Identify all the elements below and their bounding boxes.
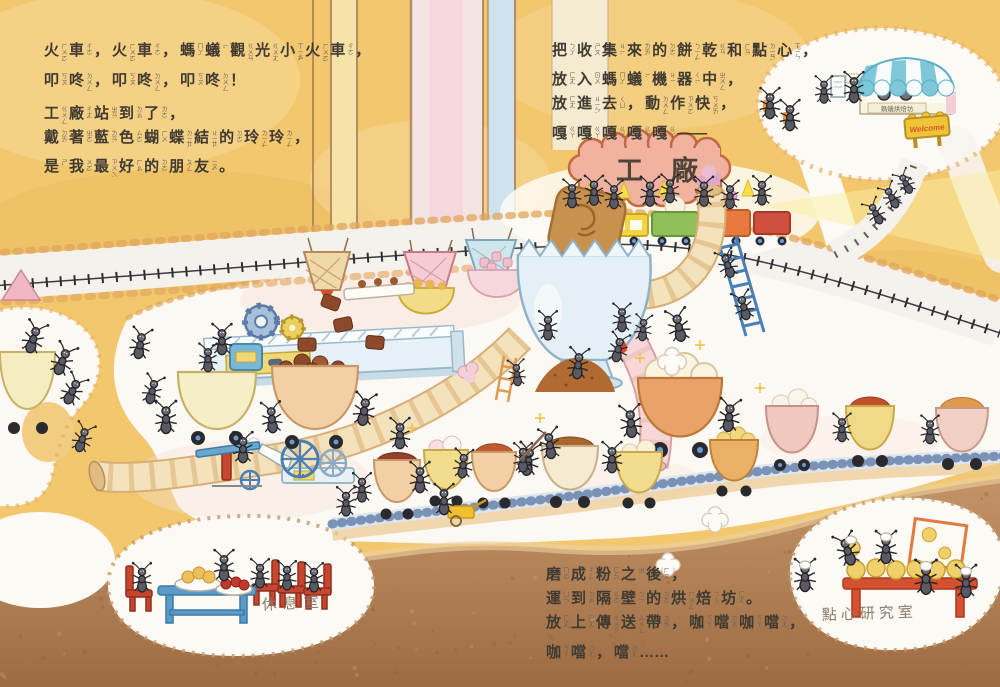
story-line: 工ㄍㄨㄥ廠ㄔㄤˇ站ㄓㄢˋ到ㄉㄠˋ了ㄌㄜ˙， xyxy=(44,105,373,124)
story-text-block-3: 磨ㄇㄛˊ成ㄔㄥˊ粉ㄈㄣˇ之ㄓ後ㄏㄡˋ， 運ㄩㄣˋ到ㄉㄠˋ隔ㄍㄜˊ壁ㄅㄧˋ的ㄉㄜ˙… xyxy=(546,566,807,666)
story-line: 咖ㄎㄚ噹ㄉㄤ，噹ㄉㄤ…… xyxy=(546,644,807,661)
story-text-block-1: 火ㄏㄨㄛˇ車ㄔㄜ，火ㄏㄨㄛˇ車ㄔㄜ，螞ㄇㄚˇ蟻ㄧˇ觀ㄍㄨㄢ光ㄍㄨㄤ小ㄒㄧㄠˇ火ㄏ… xyxy=(44,42,373,188)
story-line: 放ㄈㄤˋ入ㄖㄨˋ螞ㄇㄚˇ蟻ㄧˇ機ㄐㄧ器ㄑㄧˋ中ㄓㄨㄥ， xyxy=(552,71,820,90)
story-line: 放ㄈㄤˋ上ㄕㄤˋ傳ㄔㄨㄢˊ送ㄙㄨㄥˋ帶ㄉㄞˋ，咖ㄎㄚ噹ㄉㄤ咖ㄎㄚ噹ㄉㄤ， xyxy=(546,614,807,639)
picture-book-page: 工廠 xyxy=(0,0,1000,687)
research-room-label: 點心研究室 xyxy=(822,604,918,624)
story-line: 火ㄏㄨㄛˇ車ㄔㄜ，火ㄏㄨㄛˇ車ㄔㄜ，螞ㄇㄚˇ蟻ㄧˇ觀ㄍㄨㄢ光ㄍㄨㄤ小ㄒㄧㄠˇ火ㄏ… xyxy=(44,42,373,67)
story-line: 放ㄈㄤˋ進ㄐㄧㄣˋ去ㄑㄩˋ，動ㄉㄨㄥˋ作ㄗㄨㄛˋ快ㄎㄨㄞˋ， xyxy=(552,95,820,120)
story-line: 磨ㄇㄛˊ成ㄔㄥˊ粉ㄈㄣˇ之ㄓ後ㄏㄡˋ， xyxy=(546,566,807,585)
story-line: 把ㄅㄚˇ收ㄕㄡ集ㄐㄧˊ來ㄌㄞˊ的ㄉㄜ˙餅ㄅㄧㄥˇ乾ㄍㄢ和ㄏㄢˋ點ㄉㄧㄢˇ心ㄒㄧㄣ… xyxy=(552,42,820,66)
story-line: 叩ㄎㄡˋ咚ㄉㄨㄥ，叩ㄎㄡˋ咚ㄉㄨㄥ，叩ㄎㄡˋ咚ㄉㄨㄥ！ xyxy=(44,72,373,91)
story-line: 是ㄕˋ我ㄨㄛˇ最ㄗㄨㄟˋ好ㄏㄠˇ的ㄉㄜ˙朋ㄆㄥˊ友ㄧㄡˇ。 xyxy=(44,158,373,183)
shop-sign-text: 螞蟻烘焙坊 xyxy=(881,104,914,113)
story-line: 運ㄩㄣˋ到ㄉㄠˋ隔ㄍㄜˊ壁ㄅㄧˋ的ㄉㄜ˙烘ㄏㄨㄥ焙ㄅㄟˋ坊ㄈㄤ。 xyxy=(546,590,807,609)
rest-room-label: 休息室 xyxy=(261,594,325,614)
story-text-block-2: 把ㄅㄚˇ收ㄕㄡ集ㄐㄧˊ來ㄌㄞˊ的ㄉㄜ˙餅ㄅㄧㄥˇ乾ㄍㄢ和ㄏㄢˋ點ㄉㄧㄢˇ心ㄒㄧㄣ… xyxy=(552,42,820,147)
story-line: 戴ㄉㄞˋ著ㄓㄜ˙藍ㄌㄢˊ色ㄙㄜˋ蝴ㄏㄨˊ蝶ㄉㄧㄝˊ結ㄐㄧㄝˊ的ㄉㄜ˙玲ㄌㄧㄥˊ玲… xyxy=(44,129,373,153)
story-line: 嘎ㄍㄚ嘎ㄍㄚ嘎ㄍㄚ嘎ㄍㄚ嘎ㄍㄚ—— xyxy=(552,125,820,142)
